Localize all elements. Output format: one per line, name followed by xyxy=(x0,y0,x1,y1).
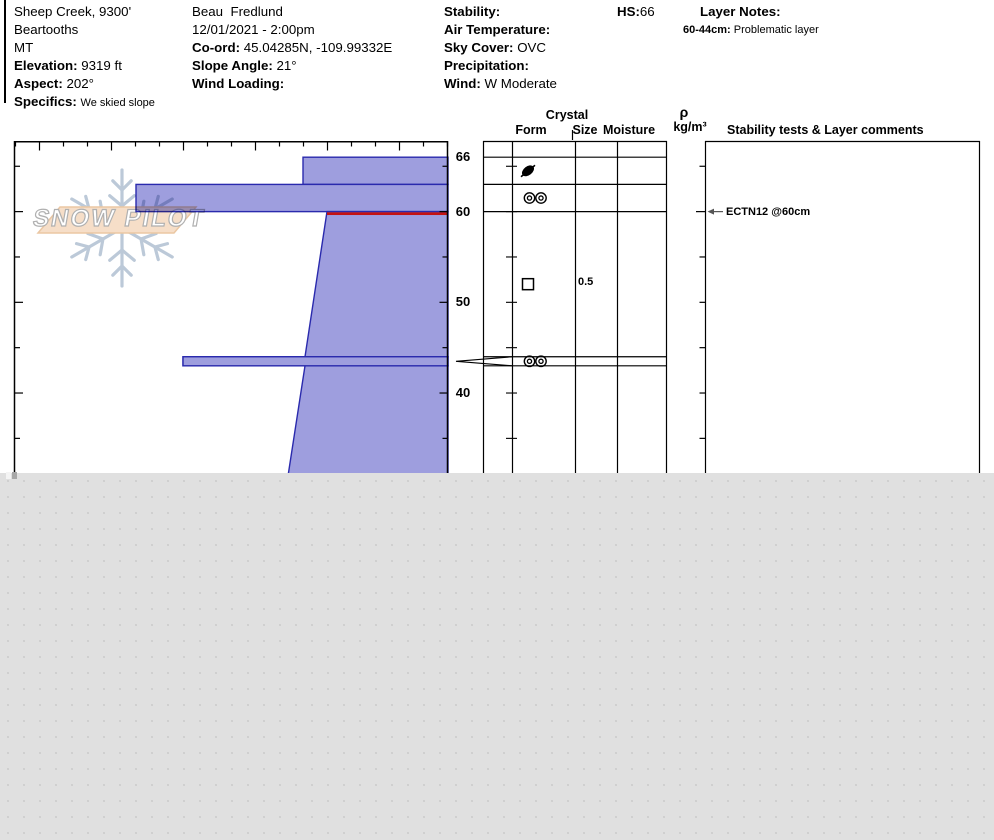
watermark-text: SNOW PILOT xyxy=(31,205,208,232)
unrendered-page-background xyxy=(0,473,994,840)
scrollbar-thumb-fragment[interactable] xyxy=(12,472,17,479)
snow-profile-chart: SNOW PILOT xyxy=(0,0,994,473)
scrollbar-track-fragment[interactable] xyxy=(6,472,11,479)
flagged-layer-red-line xyxy=(327,212,448,215)
crystal-table-frame xyxy=(483,130,980,473)
